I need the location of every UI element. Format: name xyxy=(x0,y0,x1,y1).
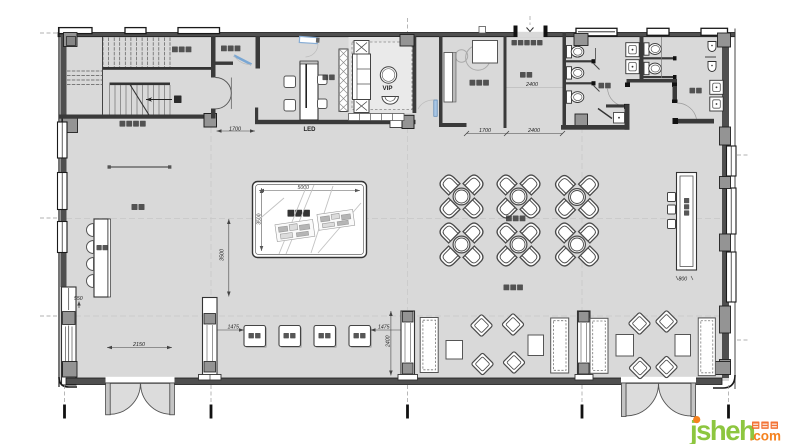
svg-text:2400: 2400 xyxy=(527,128,540,134)
svg-text:550: 550 xyxy=(74,296,83,302)
svg-text:2400: 2400 xyxy=(525,82,538,88)
svg-text:1700: 1700 xyxy=(479,128,491,134)
svg-text:5000: 5000 xyxy=(298,185,310,191)
svg-text:1475: 1475 xyxy=(378,325,390,331)
svg-text:2150: 2150 xyxy=(132,342,145,348)
svg-text:3500: 3500 xyxy=(220,249,226,261)
svg-text:1475: 1475 xyxy=(228,325,240,331)
svg-text:1700: 1700 xyxy=(229,127,241,133)
svg-text:800: 800 xyxy=(679,277,688,283)
svg-text:.com: .com xyxy=(750,429,782,444)
svg-text:LED: LED xyxy=(304,127,317,133)
svg-text:2400: 2400 xyxy=(386,335,392,348)
svg-text:VIP: VIP xyxy=(383,85,393,92)
